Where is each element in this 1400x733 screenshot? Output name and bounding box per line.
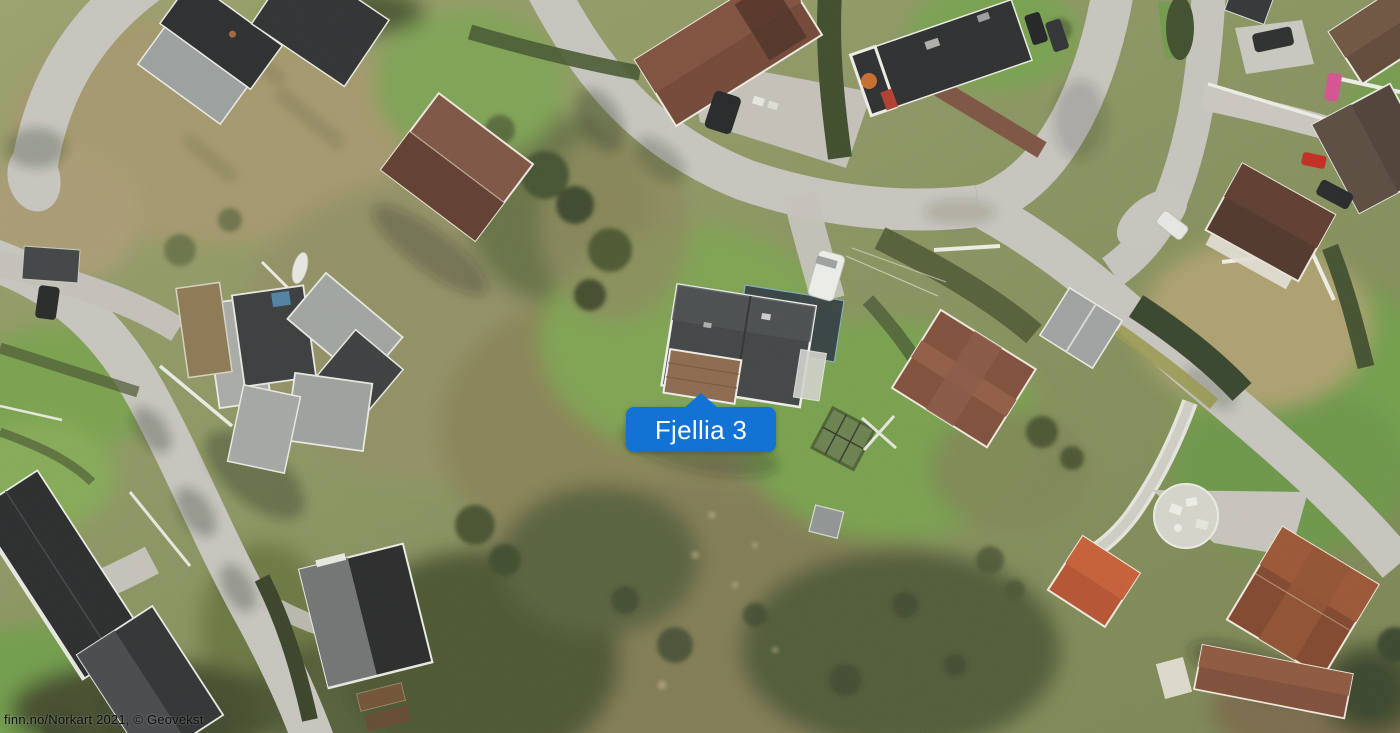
aerial-imagery <box>0 0 1400 733</box>
aerial-map-canvas[interactable]: Fjellia 3 finn.no/Norkart 2021, © Geovek… <box>0 0 1400 733</box>
address-marker[interactable]: Fjellia 3 <box>626 407 776 452</box>
map-attribution: finn.no/Norkart 2021, © Geovekst <box>4 712 204 727</box>
address-marker-label: Fjellia 3 <box>655 417 747 443</box>
photo-tint <box>0 0 1400 733</box>
